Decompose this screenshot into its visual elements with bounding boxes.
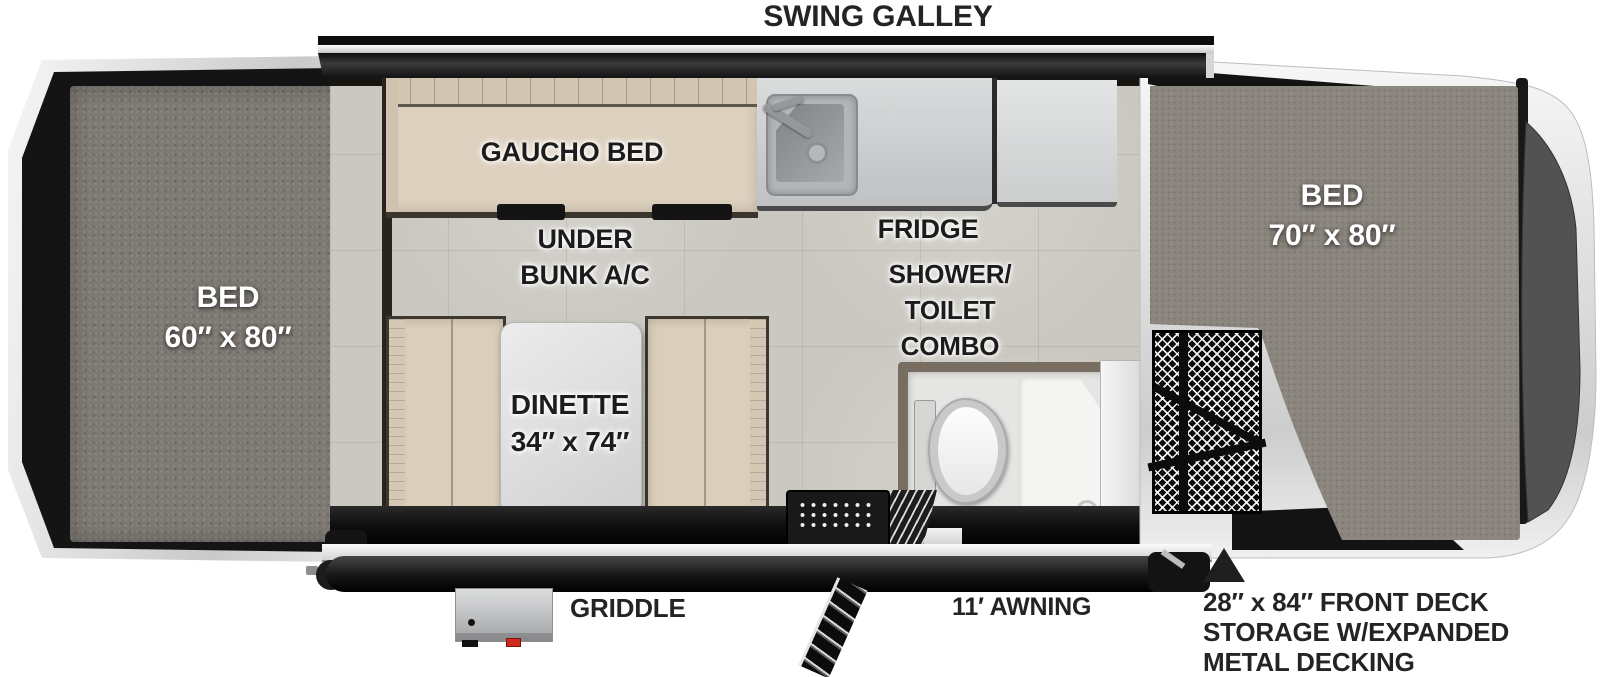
galley-bar-top — [318, 36, 1214, 45]
toilet-icon — [928, 398, 1008, 504]
griddle-knob-icon — [468, 619, 475, 626]
griddle-label: GRIDDLE — [570, 593, 730, 624]
right-bed-label-line1: BED — [1182, 176, 1482, 216]
entry-step-grate — [786, 490, 890, 548]
gaucho-bed-armrest — [386, 78, 398, 212]
cushion-seam — [451, 319, 453, 525]
grate-perforations — [797, 500, 877, 530]
griddle-latch — [506, 638, 521, 647]
deck-brace — [1147, 439, 1266, 472]
galley-bar-body — [318, 53, 1214, 78]
deck-brace — [1179, 333, 1188, 511]
fridge-counter — [997, 80, 1117, 207]
front-deck-label: 28″ x 84″ FRONT DECK STORAGE W/EXPANDED … — [1203, 587, 1593, 677]
ac-vent — [652, 204, 732, 220]
gaucho-bed-label: GAUCHO BED — [422, 137, 722, 168]
under-bunk-ac-line1: UNDER — [435, 221, 735, 257]
shower-toilet-line2: TOILET — [850, 292, 1050, 328]
dinette-label-line2: 34″ x 74″ — [470, 423, 670, 460]
front-deck-line3: METAL DECKING — [1203, 647, 1593, 677]
dinette-bench-left-armrest — [389, 319, 405, 525]
front-deck-line1: 28″ x 84″ FRONT DECK — [1203, 587, 1593, 617]
fridge-label: FRIDGE — [828, 214, 1028, 245]
awning-roller — [326, 556, 1194, 592]
deck-brace — [1152, 383, 1262, 446]
dinette-label: DINETTE 34″ x 74″ — [470, 386, 670, 460]
faucet-knob-icon — [806, 142, 828, 164]
dinette-bench-right-armrest — [750, 319, 766, 525]
under-bunk-ac-line2: BUNK A/C — [435, 257, 735, 293]
deck-pointer-icon — [1203, 548, 1245, 582]
swing-galley-bar — [318, 34, 1214, 80]
metal-decking — [1152, 330, 1262, 514]
awning-label: 11′ AWNING — [952, 593, 1152, 622]
step-hardware — [1148, 552, 1210, 592]
right-bed-label: BED 70″ x 80″ — [1182, 176, 1482, 256]
griddle-foot — [462, 640, 478, 647]
dinette-label-line1: DINETTE — [470, 386, 670, 423]
entry-folding-step — [798, 577, 867, 677]
under-bunk-ac-label: UNDER BUNK A/C — [435, 221, 735, 293]
floorplan-diagram: SWING GALLEY BED 60″ x 80″ GAUCHO BED UN… — [0, 0, 1600, 677]
shower-toilet-line1: SHOWER/ — [850, 256, 1050, 292]
griddle-accessory — [455, 588, 553, 642]
shower-toilet-label: SHOWER/ TOILET COMBO — [850, 256, 1050, 364]
galley-bar-trim — [318, 45, 1214, 53]
swing-galley-label: SWING GALLEY — [728, 0, 1028, 34]
right-bed-label-line2: 70″ x 80″ — [1182, 216, 1482, 256]
shower-toilet-line3: COMBO — [850, 328, 1050, 364]
cushion-seam — [704, 319, 706, 525]
gaucho-bed-backrest — [386, 78, 758, 107]
front-deck-line2: STORAGE W/EXPANDED — [1203, 617, 1593, 647]
bottom-wall-left — [330, 506, 786, 546]
ac-vent — [497, 204, 565, 220]
toilet-lid — [938, 407, 998, 495]
galley-bar-cap — [1206, 53, 1214, 78]
